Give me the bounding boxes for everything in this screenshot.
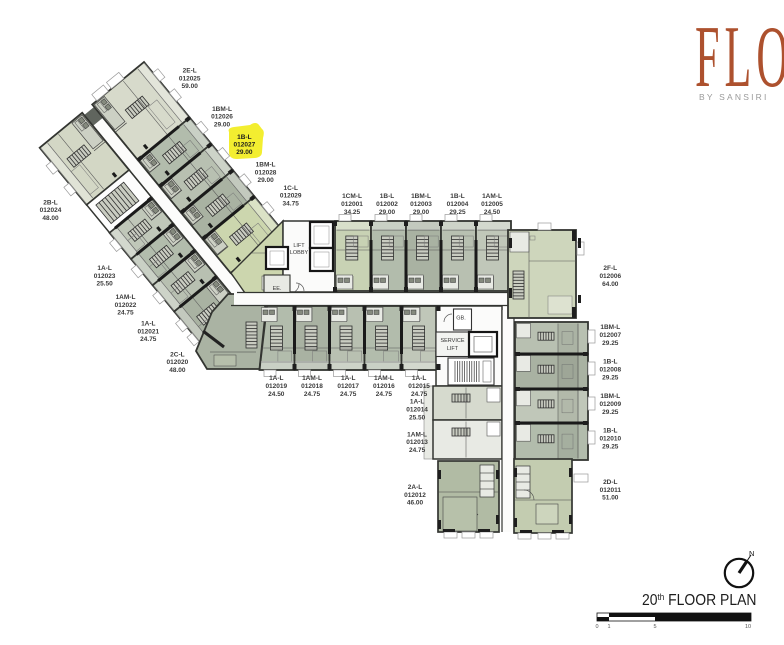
svg-text:24.75: 24.75 — [304, 391, 321, 398]
svg-text:012019: 012019 — [265, 383, 287, 390]
svg-text:012006: 012006 — [599, 273, 621, 280]
svg-text:012012: 012012 — [404, 492, 426, 499]
svg-text:29.00: 29.00 — [379, 209, 396, 216]
svg-text:012013: 012013 — [406, 439, 428, 446]
svg-text:BY SANSIRI: BY SANSIRI — [699, 92, 769, 102]
svg-text:N: N — [749, 549, 754, 558]
svg-text:1BM-L: 1BM-L — [411, 193, 431, 200]
svg-text:012029: 012029 — [280, 193, 302, 200]
svg-text:012026: 012026 — [211, 114, 233, 121]
svg-text:46.00: 46.00 — [407, 500, 424, 507]
svg-text:2B-L: 2B-L — [43, 199, 57, 206]
svg-text:012027: 012027 — [234, 142, 256, 149]
svg-text:0: 0 — [595, 624, 598, 630]
svg-text:012010: 012010 — [599, 436, 621, 443]
svg-text:29.25: 29.25 — [602, 409, 619, 416]
svg-text:10: 10 — [745, 624, 751, 630]
svg-text:1B-L: 1B-L — [603, 359, 617, 366]
svg-text:012014: 012014 — [406, 407, 428, 414]
svg-text:LIFT: LIFT — [447, 346, 459, 352]
svg-text:1B-L: 1B-L — [450, 193, 464, 200]
svg-text:012001: 012001 — [341, 201, 363, 208]
svg-text:1A-L: 1A-L — [97, 265, 111, 272]
svg-text:1B-L: 1B-L — [603, 428, 617, 435]
svg-text:25.50: 25.50 — [96, 281, 113, 288]
svg-text:1AM-L: 1AM-L — [407, 431, 427, 438]
svg-text:012002: 012002 — [376, 201, 398, 208]
svg-text:29.25: 29.25 — [449, 209, 466, 216]
svg-text:LIFT: LIFT — [293, 243, 305, 249]
svg-text:012022: 012022 — [115, 302, 137, 309]
svg-text:1: 1 — [607, 624, 610, 630]
svg-text:012011: 012011 — [600, 487, 622, 494]
svg-text:012017: 012017 — [337, 383, 359, 390]
svg-text:1A-L: 1A-L — [410, 399, 424, 406]
svg-text:34.75: 34.75 — [283, 200, 300, 207]
svg-text:2A-L: 2A-L — [408, 484, 422, 491]
svg-text:1BM-L: 1BM-L — [600, 324, 620, 331]
svg-text:29.25: 29.25 — [602, 443, 619, 450]
svg-text:29.00: 29.00 — [257, 177, 274, 184]
svg-text:24.75: 24.75 — [376, 391, 393, 398]
svg-text:29.00: 29.00 — [214, 121, 231, 128]
svg-text:012028: 012028 — [255, 169, 277, 176]
svg-text:1A-L: 1A-L — [141, 321, 155, 328]
svg-text:24.75: 24.75 — [140, 336, 157, 343]
svg-text:1CM-L: 1CM-L — [342, 193, 362, 200]
svg-text:LOBBY: LOBBY — [290, 250, 309, 256]
svg-text:1BM-L: 1BM-L — [600, 393, 620, 400]
svg-text:2C-L: 2C-L — [170, 351, 184, 358]
svg-text:48.00: 48.00 — [169, 367, 186, 374]
svg-text:1AM-L: 1AM-L — [482, 193, 502, 200]
svg-text:24.75: 24.75 — [411, 391, 428, 398]
svg-text:012020: 012020 — [167, 359, 189, 366]
svg-text:012003: 012003 — [410, 201, 432, 208]
svg-text:1A-L: 1A-L — [269, 375, 283, 382]
svg-text:012015: 012015 — [408, 383, 430, 390]
svg-text:012021: 012021 — [137, 328, 159, 335]
svg-text:012016: 012016 — [373, 383, 395, 390]
svg-text:24.75: 24.75 — [409, 447, 426, 454]
svg-text:24.50: 24.50 — [484, 209, 501, 216]
svg-text:012023: 012023 — [94, 273, 116, 280]
svg-text:012008: 012008 — [599, 367, 621, 374]
svg-text:1B-L: 1B-L — [380, 193, 394, 200]
svg-text:2F-L: 2F-L — [603, 265, 617, 272]
svg-text:1A-L: 1A-L — [341, 375, 355, 382]
svg-text:5: 5 — [653, 624, 656, 630]
svg-text:2D-L: 2D-L — [603, 479, 617, 486]
svg-text:1BM-L: 1BM-L — [212, 106, 232, 113]
svg-text:012004: 012004 — [447, 201, 469, 208]
svg-text:29.00: 29.00 — [413, 209, 430, 216]
svg-text:64.00: 64.00 — [602, 281, 619, 288]
svg-text:1BM-L: 1BM-L — [256, 162, 276, 169]
svg-text:1AM-L: 1AM-L — [302, 375, 322, 382]
svg-text:29.25: 29.25 — [602, 340, 619, 347]
svg-text:24.75: 24.75 — [340, 391, 357, 398]
svg-text:2E-L: 2E-L — [183, 68, 197, 75]
svg-text:25.50: 25.50 — [409, 414, 426, 421]
svg-text:1AM-L: 1AM-L — [374, 375, 394, 382]
svg-text:012007: 012007 — [599, 332, 621, 339]
svg-text:GB.: GB. — [456, 316, 466, 322]
svg-text:51.00: 51.00 — [602, 495, 619, 502]
svg-text:1A-L: 1A-L — [412, 375, 426, 382]
svg-text:EE.: EE. — [273, 286, 282, 292]
svg-text:24.50: 24.50 — [268, 391, 285, 398]
svg-text:48.00: 48.00 — [42, 215, 59, 222]
svg-text:012009: 012009 — [599, 401, 621, 408]
svg-text:29.25: 29.25 — [602, 374, 619, 381]
svg-text:SERVICE: SERVICE — [440, 338, 464, 344]
svg-text:34.25: 34.25 — [344, 209, 361, 216]
svg-text:012005: 012005 — [481, 201, 503, 208]
svg-text:012018: 012018 — [301, 383, 323, 390]
svg-text:29.00: 29.00 — [236, 149, 253, 156]
svg-text:012025: 012025 — [179, 75, 201, 82]
svg-text:24.75: 24.75 — [117, 310, 134, 317]
svg-text:1B-L: 1B-L — [237, 134, 251, 141]
svg-text:59.00: 59.00 — [182, 83, 199, 90]
svg-text:1C-L: 1C-L — [283, 185, 297, 192]
svg-text:012024: 012024 — [40, 207, 62, 214]
svg-text:1AM-L: 1AM-L — [116, 294, 136, 301]
